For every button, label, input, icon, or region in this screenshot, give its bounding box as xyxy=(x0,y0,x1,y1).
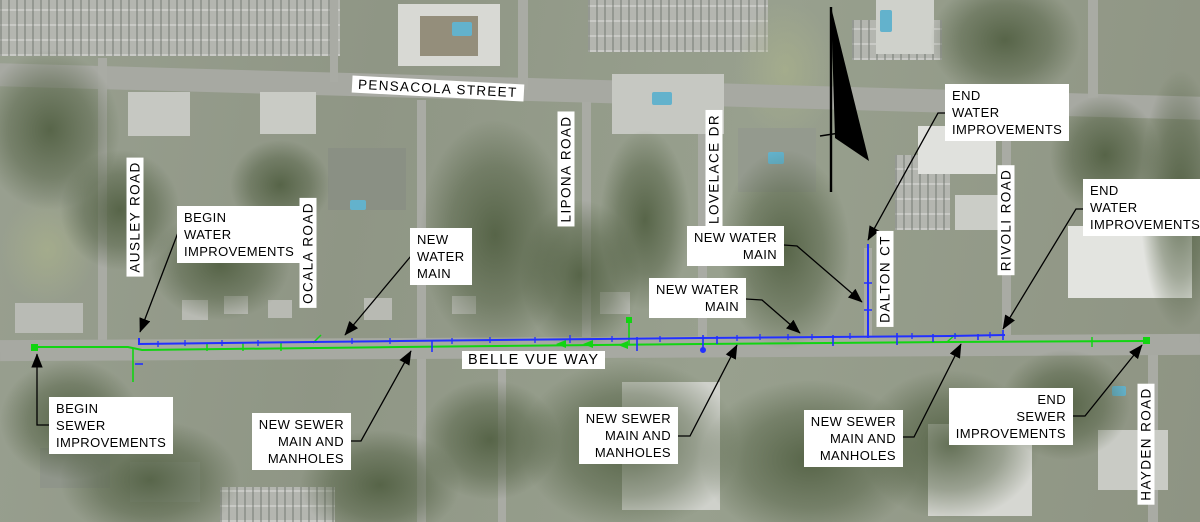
callout-new-water-main-west: NEW WATER MAIN xyxy=(410,228,472,285)
street-label-ocala-road: OCALA ROAD xyxy=(300,198,317,308)
callout-begin-water-improvements: BEGIN WATER IMPROVEMENTS xyxy=(177,206,301,263)
callout-line: NEW SEWER xyxy=(811,413,896,430)
street-label-dalton-ct: DALTON CT xyxy=(877,231,894,327)
leader-begin-water xyxy=(140,230,179,332)
sewer-flow-arrow xyxy=(583,340,593,348)
callout-line: MANHOLES xyxy=(259,450,344,467)
callout-line: WATER xyxy=(184,226,294,243)
callout-new-sewer-main-east: NEW SEWER MAIN AND MANHOLES xyxy=(804,410,903,467)
callout-line: WATER xyxy=(417,248,465,265)
sewer-flow-arrow xyxy=(556,340,566,348)
callout-line: MAIN xyxy=(656,298,739,315)
callout-begin-sewer-improvements: BEGIN SEWER IMPROVEMENTS xyxy=(49,397,173,454)
street-label-rivoli-road: RIVOLI ROAD xyxy=(998,165,1015,275)
callout-line: WATER xyxy=(1090,199,1200,216)
leader-end-water-east xyxy=(1003,209,1084,329)
callout-line: IMPROVEMENTS xyxy=(956,425,1066,442)
leader-new-water-dalton xyxy=(784,245,862,302)
callout-line: MANHOLES xyxy=(811,447,896,464)
callout-line: END xyxy=(952,87,1062,104)
callout-new-sewer-main-west: NEW SEWER MAIN AND MANHOLES xyxy=(252,413,351,470)
callout-line: BEGIN xyxy=(56,400,166,417)
begin-sewer-point xyxy=(31,344,38,351)
callout-line: MAIN xyxy=(694,246,777,263)
callout-line: END xyxy=(956,391,1066,408)
callout-new-water-main-dalton: NEW WATER MAIN xyxy=(687,226,784,266)
callout-line: END xyxy=(1090,182,1200,199)
sewer-markers xyxy=(31,317,1150,351)
callout-line: IMPROVEMENTS xyxy=(184,243,294,260)
north-arrow-icon xyxy=(820,7,869,192)
end-sewer-point xyxy=(1143,337,1150,344)
leader-end-water-dalton xyxy=(868,113,946,240)
callout-line: NEW SEWER xyxy=(586,410,671,427)
callout-line: MAIN xyxy=(417,265,465,282)
callout-line: NEW WATER xyxy=(694,229,777,246)
sewer-flow-arrow xyxy=(618,341,628,349)
street-label-hayden-road: HAYDEN ROAD xyxy=(1138,383,1155,504)
callout-line: SEWER xyxy=(956,408,1066,425)
callout-new-sewer-main-mid: NEW SEWER MAIN AND MANHOLES xyxy=(579,407,678,464)
callout-line: NEW xyxy=(417,231,465,248)
leader-new-sewer-west xyxy=(351,351,411,441)
callout-line: BEGIN xyxy=(184,209,294,226)
leader-new-water-west xyxy=(345,256,411,335)
callout-line: NEW WATER xyxy=(656,281,739,298)
callout-line: SEWER xyxy=(56,417,166,434)
leader-new-water-belle-vue xyxy=(746,299,800,333)
callout-end-water-improvements-dalton: END WATER IMPROVEMENTS xyxy=(945,84,1069,141)
street-label-lovelace-dr: LOVELACE DR xyxy=(706,110,723,228)
callout-line: IMPROVEMENTS xyxy=(1090,216,1200,233)
aerial-plan-map: PENSACOLA STREET BELLE VUE WAY AUSLEY RO… xyxy=(0,0,1200,522)
street-label-belle-vue-way: BELLE VUE WAY xyxy=(462,351,605,369)
street-label-lipona-road: LIPONA ROAD xyxy=(558,112,575,227)
street-label-ausley-road: AUSLEY ROAD xyxy=(127,157,144,276)
callout-line: MAIN AND xyxy=(811,430,896,447)
callout-line: MAIN AND xyxy=(586,427,671,444)
callout-end-water-improvements-east: END WATER IMPROVEMENTS xyxy=(1083,179,1200,236)
callout-line: IMPROVEMENTS xyxy=(952,121,1062,138)
callout-line: MANHOLES xyxy=(586,444,671,461)
callout-line: NEW SEWER xyxy=(259,416,344,433)
callout-end-sewer-improvements: END SEWER IMPROVEMENTS xyxy=(949,388,1073,445)
callout-line: WATER xyxy=(952,104,1062,121)
callout-line: MAIN AND xyxy=(259,433,344,450)
callout-line: IMPROVEMENTS xyxy=(56,434,166,451)
callout-new-water-main-belle-vue: NEW WATER MAIN xyxy=(649,278,746,318)
leader-new-sewer-mid xyxy=(678,345,737,436)
leader-end-sewer xyxy=(1073,345,1142,416)
